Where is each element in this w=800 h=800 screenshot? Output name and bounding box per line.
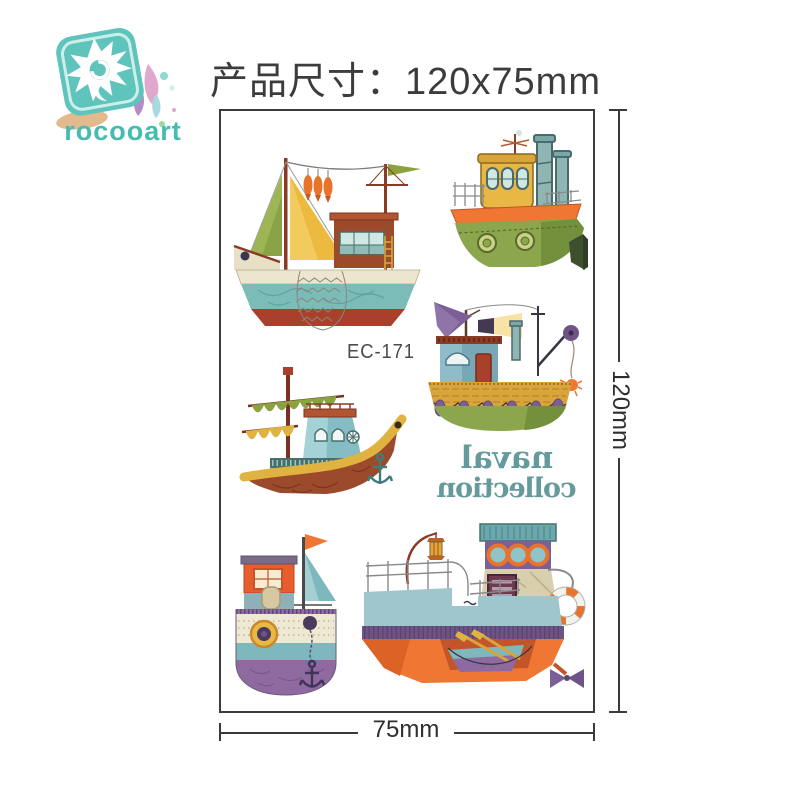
height-dimension-cap-top bbox=[609, 109, 627, 111]
page-title: 产品尺寸：120x75mm bbox=[210, 50, 601, 105]
width-dimension-cap-left bbox=[219, 723, 221, 741]
product-page: rocooart 产品尺寸：120x75mm bbox=[0, 0, 800, 800]
width-dimension-label: 75mm bbox=[358, 716, 454, 744]
width-dimension-cap-right bbox=[593, 723, 595, 741]
brand-name: rocooart bbox=[48, 116, 198, 147]
boat-sailship-icon bbox=[232, 366, 408, 518]
boat-tugboat-icon bbox=[443, 130, 588, 275]
boat-fishing-sailboat-icon bbox=[228, 148, 426, 332]
boat-round-hull-icon bbox=[228, 531, 346, 699]
tattoo-lettering: naval collection bbox=[423, 443, 591, 502]
height-dimension-label: 120mm bbox=[600, 362, 640, 458]
tattoo-lettering-line1: naval bbox=[423, 443, 591, 475]
product-code: EC-171 bbox=[341, 341, 420, 364]
boat-cargo-ship-icon bbox=[352, 518, 592, 700]
tattoo-lettering-line2: collection bbox=[423, 475, 591, 503]
boat-trawler-icon bbox=[420, 296, 582, 434]
height-dimension-cap-bottom bbox=[609, 711, 627, 713]
